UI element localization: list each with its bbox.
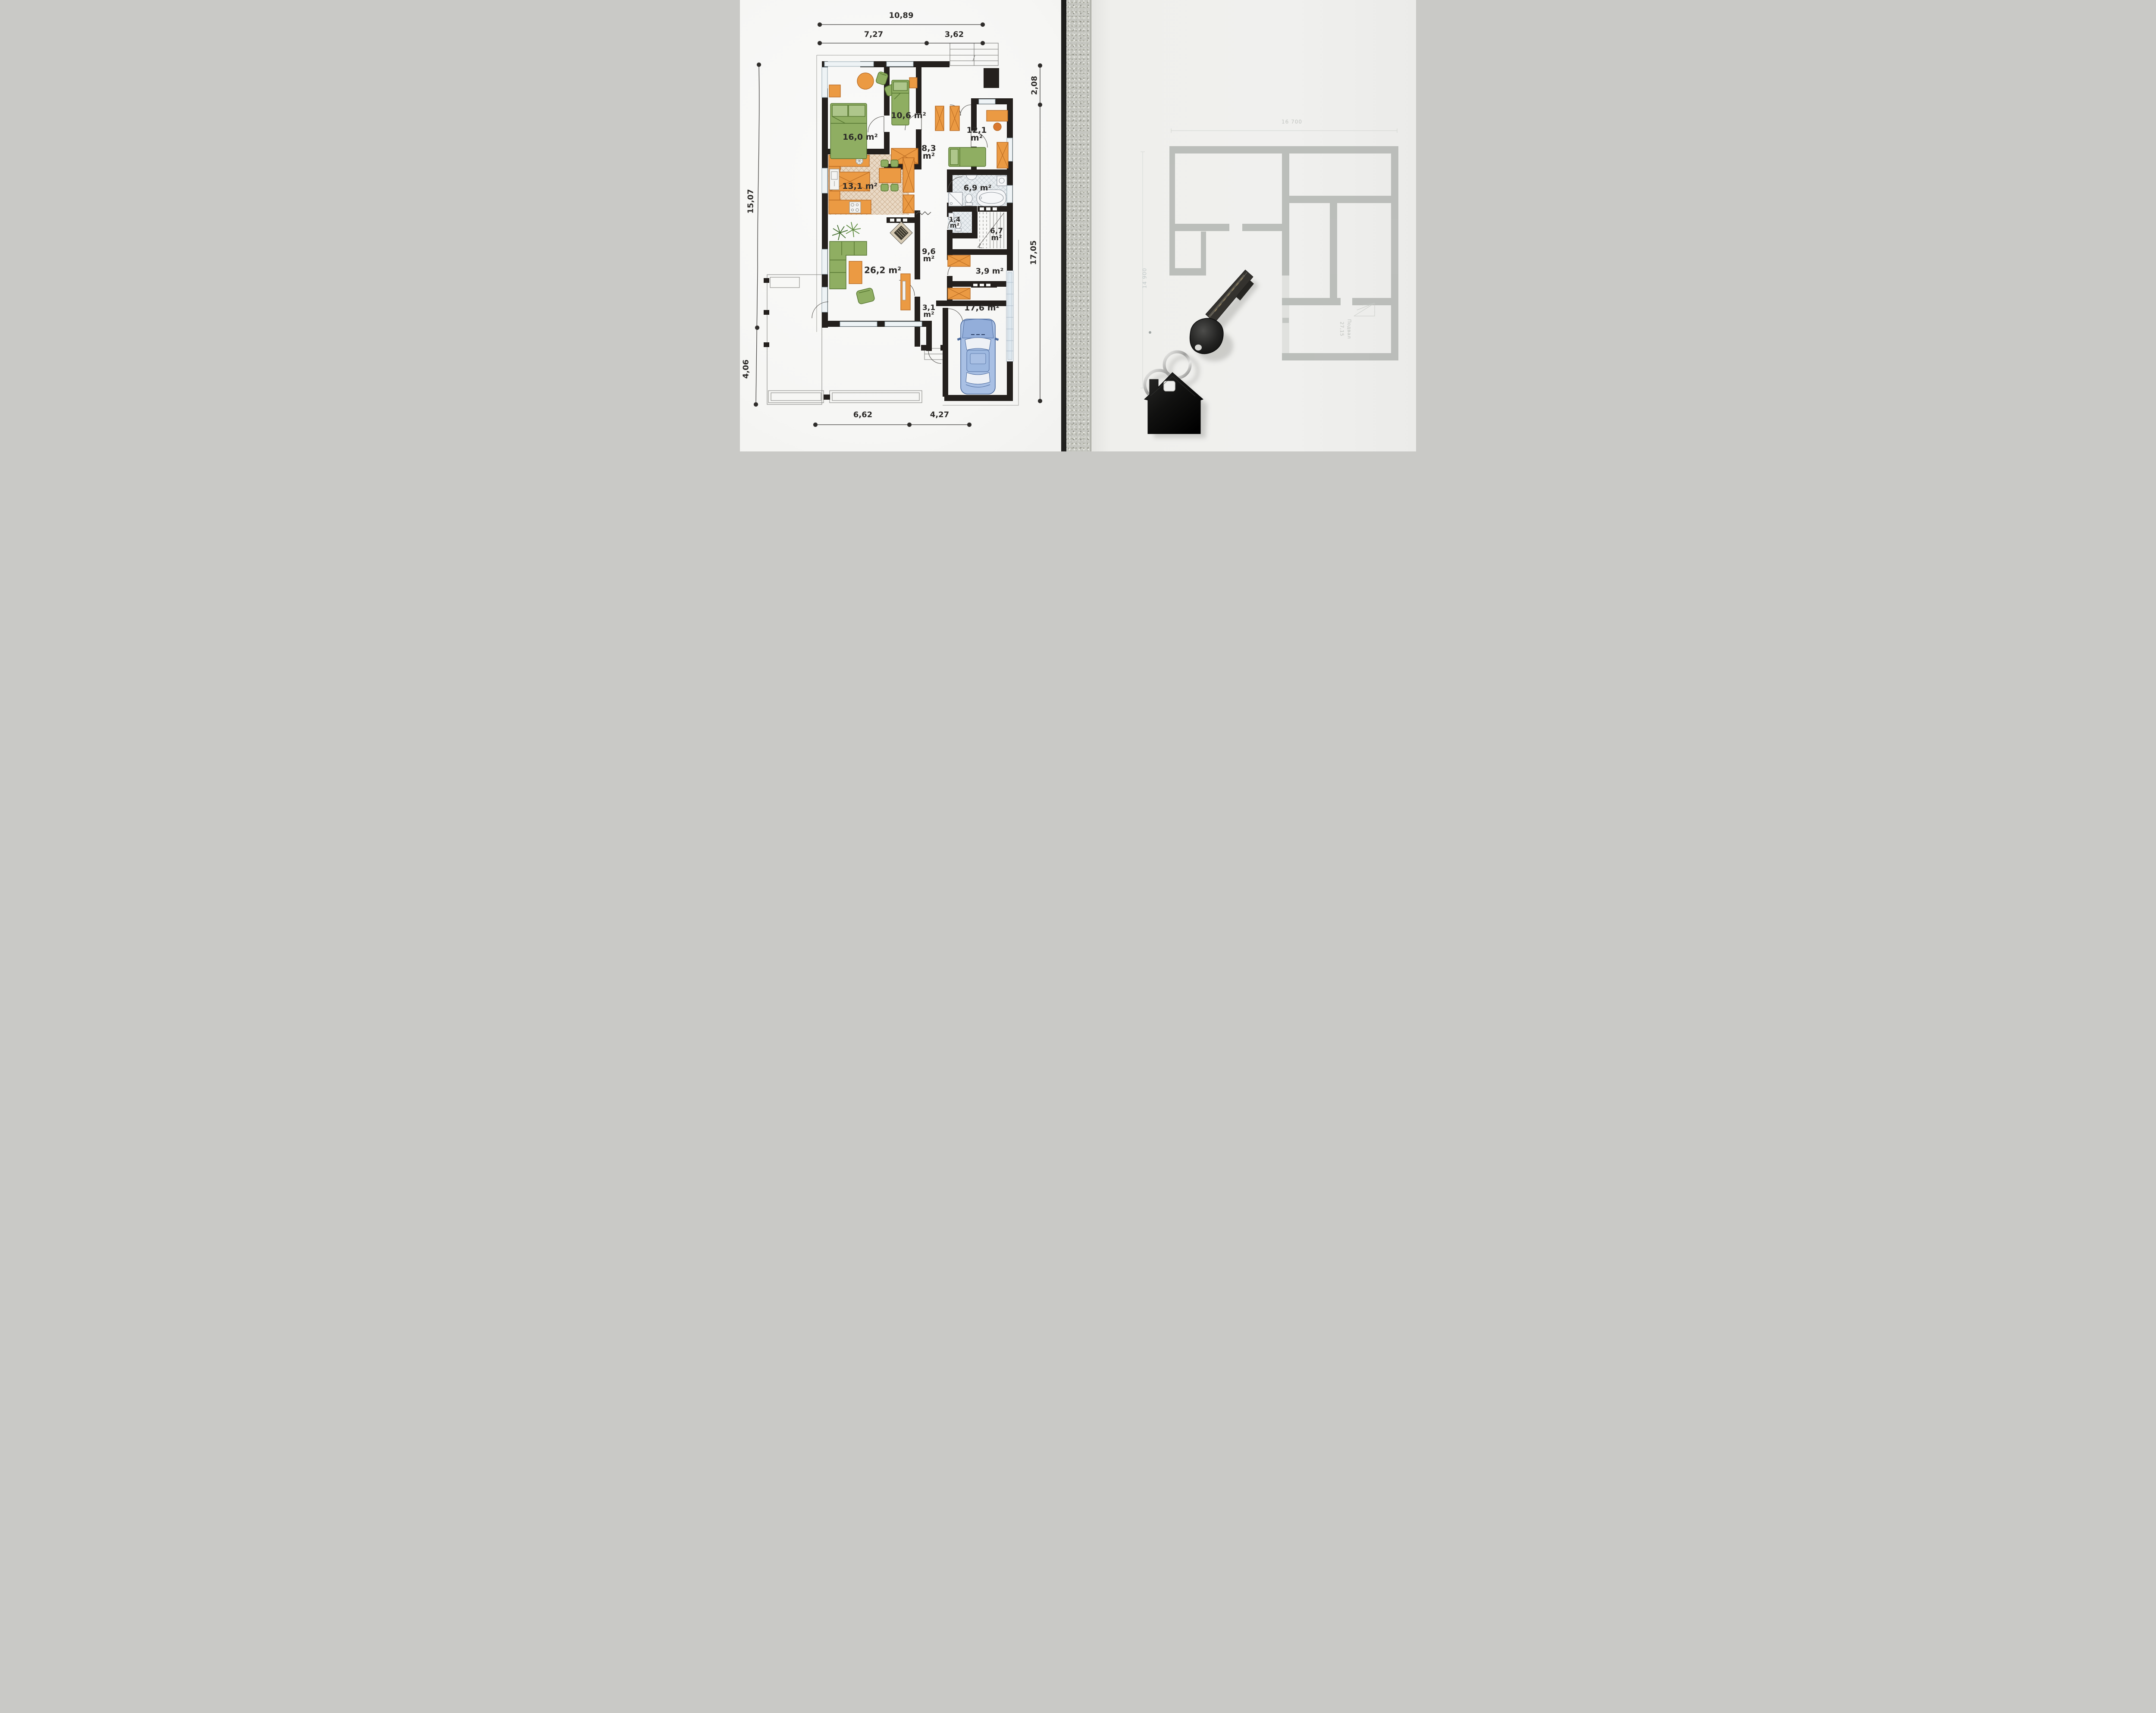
room-area-wc: 1,4m² [949,216,961,229]
key-head-hole [1195,344,1202,351]
dim-bottom-left: 6,62 [853,411,872,418]
room-area-corridor: 9,6m² [922,248,936,263]
key-with-keychain [1144,270,1259,438]
tv [903,281,906,300]
dim-bottom-right: 4,27 [930,411,949,418]
entrance-steps [950,43,998,66]
dim-right-upper: 2,08 [1031,76,1038,95]
dim-top-total: 10,89 [889,12,914,19]
room-area-bedroom-2: 10,6 m² [891,112,926,119]
room-area-storage: 3,9 m² [976,267,1004,275]
plans-and-key-graphics [740,0,1416,451]
room-area-entry: 3,1m² [922,304,935,318]
terrace-posts [764,278,830,400]
dim-left-lower: 4,06 [742,360,749,379]
car [957,319,999,394]
room-area-bedroom-main: 16,0 m² [843,133,878,141]
room-area-stairs: 6,7m² [990,228,1003,241]
basement-dim-left: 14 900 [1142,268,1147,288]
room-area-garage: 17,6 m² [964,304,1000,312]
room-area-hall: 8,3m² [921,144,936,160]
dim-top-right: 3,62 [945,31,964,38]
photo-of-floor-plans: 10,89 7,27 3,62 2,08 17,05 15,07 4,06 6,… [740,0,1416,451]
room-area-bedroom-3: 12,1m² [967,126,987,142]
dim-right-lower: 17,05 [1030,241,1037,265]
room-area-bathroom: 6,9 m² [964,184,992,191]
room-area-kitchen: 13,1 m² [842,182,877,190]
dim-left-upper: 15,07 [747,189,754,214]
dim-top-left: 7,27 [864,31,883,38]
room-area-living-room: 26,2 m² [864,266,901,275]
porch-column [984,68,999,88]
fireplace [890,222,912,244]
basement-plan [1141,128,1398,388]
basement-room-label: Подвал27,15 [1338,319,1353,339]
plants [832,222,861,240]
garage-door [1006,271,1013,361]
floor-plan [754,23,1042,427]
basement-dim-top: 16 700 [1282,119,1302,124]
